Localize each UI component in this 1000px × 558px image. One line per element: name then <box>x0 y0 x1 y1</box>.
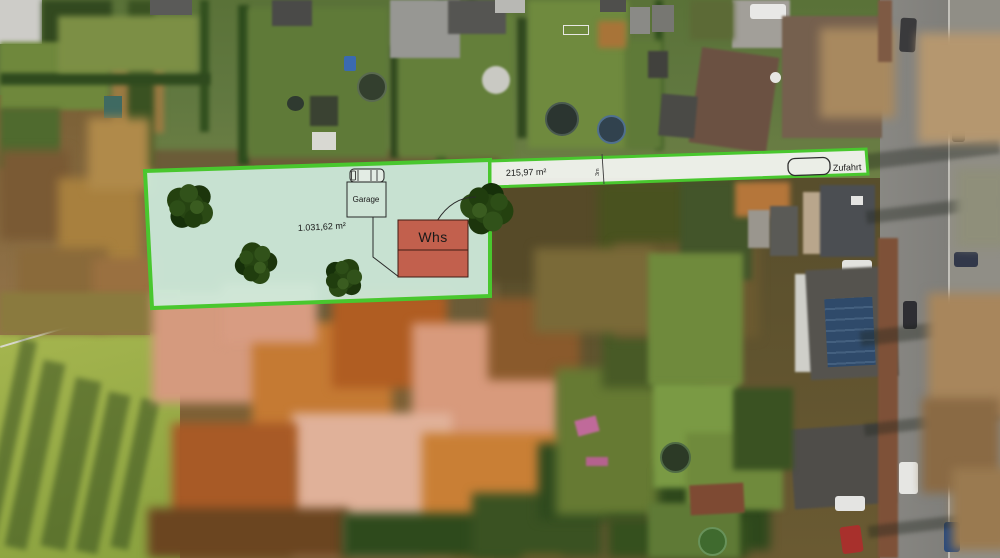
strip-width-label: 3m <box>595 168 601 176</box>
parked-car-icon <box>350 169 384 182</box>
garage-label: Garage <box>353 195 380 204</box>
house-label: Whs <box>418 229 447 245</box>
aerial-site-plan: 3m Garage Whs 1.031,62 m² 215,97 m² Zufa… <box>0 0 1000 558</box>
tree-icon <box>167 184 213 228</box>
tree-icon <box>326 259 362 297</box>
access-strip-polygon <box>490 149 868 187</box>
zufahrt-label: Zufahrt <box>833 162 862 173</box>
strip-area-label: 215,97 m² <box>506 167 547 178</box>
site-plan-overlay: 3m Garage Whs 1.031,62 m² 215,97 m² Zufa… <box>0 0 1000 558</box>
